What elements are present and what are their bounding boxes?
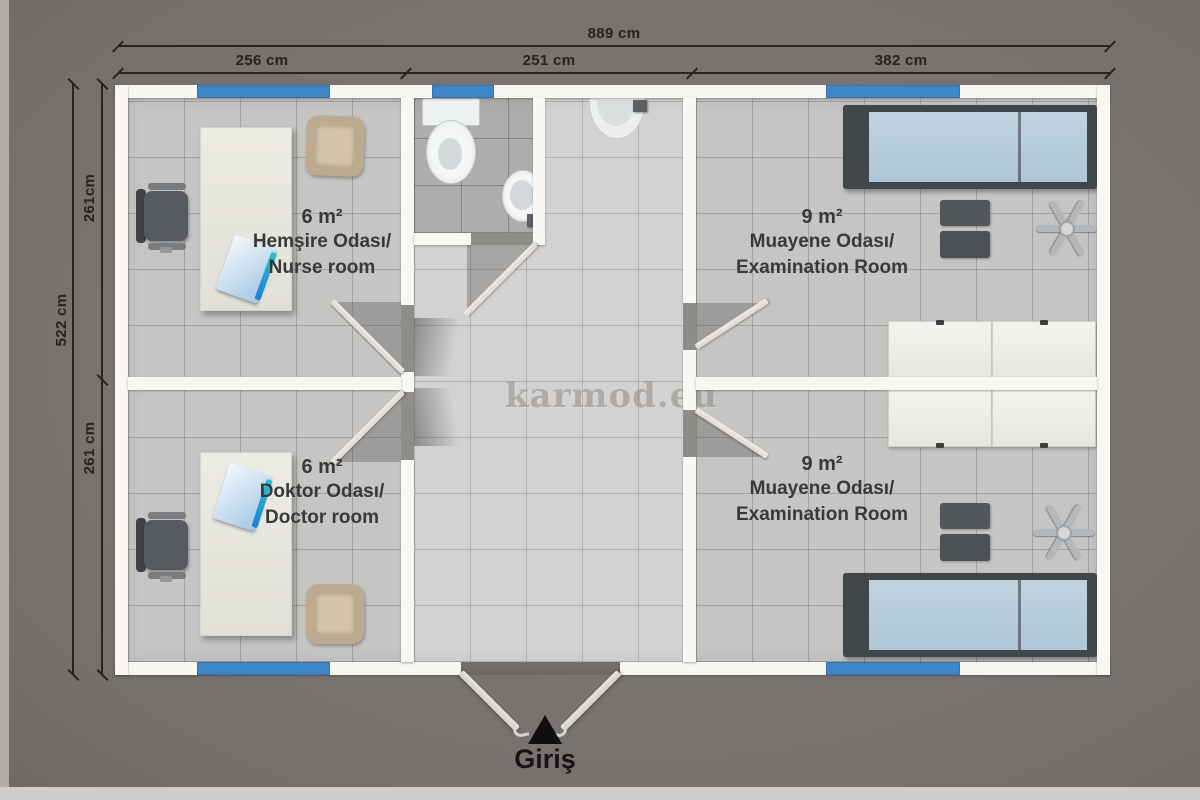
wall-corridor-right-middle [683, 350, 696, 410]
room-label-doctor: 6 m² Doktor Odası/ Doctor room [212, 455, 432, 531]
doctor-guest-chair [306, 584, 364, 644]
wall-divider-left-rooms [128, 377, 401, 390]
floor-plan-scene: 889 cm 256 cm 251 cm 382 cm 522 cm 261cm… [0, 0, 1200, 800]
room-area-exam-bottom: 9 m² [712, 452, 932, 476]
dimension-label-height-segment-2: 261 cm [82, 412, 98, 484]
dimension-label-segment-1: 256 cm [180, 52, 344, 69]
exam-top-bed [843, 105, 1097, 189]
entrance-label: Giriş [495, 744, 595, 775]
dimension-label-segment-2: 251 cm [467, 52, 631, 69]
window-exam-top [826, 85, 960, 98]
exam-bottom-bed [843, 573, 1097, 657]
dimension-line-overall-height [72, 84, 74, 675]
room-area-exam-top: 9 m² [712, 205, 932, 229]
door-opening-exam-bottom [683, 410, 696, 457]
door-opening-wc [471, 233, 533, 245]
window-nurse [197, 85, 330, 98]
watermark-text: karmod.eu [505, 376, 705, 416]
entrance-arrow-icon [528, 715, 562, 744]
wall-corridor-right-lower [683, 457, 696, 662]
room-name-en-nurse: Nurse room [212, 255, 432, 281]
dimension-line-top-segments [118, 72, 1110, 74]
exam-top-chair [940, 200, 990, 258]
nurse-guest-chair [305, 115, 365, 177]
room-label-nurse: 6 m² Hemşire Odası/ Nurse room [212, 205, 432, 281]
wall-right [1097, 85, 1110, 675]
room-name-tr-doctor: Doktor Odası/ [212, 479, 432, 505]
nurse-office-chair [136, 183, 196, 253]
door-opening-nurse [401, 305, 414, 372]
wall-divider-exam-rooms [696, 377, 1097, 390]
door-opening-exam-top [683, 303, 696, 350]
wall-left [115, 85, 128, 675]
dimension-label-segment-3: 382 cm [819, 52, 983, 69]
entrance-door-left [459, 670, 521, 732]
window-doctor [197, 662, 330, 675]
room-area-nurse: 6 m² [212, 205, 432, 229]
doctor-office-chair [136, 512, 196, 582]
door-shadow-corridor-doctor [414, 388, 466, 446]
corridor-soap-dispenser [633, 100, 647, 112]
room-name-en-doctor: Doctor room [212, 505, 432, 531]
door-shadow-corridor-nurse [414, 318, 466, 376]
room-name-en-exam-bottom: Examination Room [712, 502, 932, 528]
room-name-tr-exam-top: Muayene Odası/ [712, 229, 932, 255]
photo-edge-left [0, 0, 9, 800]
exam-bottom-desk-1 [888, 389, 992, 447]
photo-edge-bottom [0, 787, 1200, 800]
wall-corridor-left-middle [401, 372, 414, 392]
dimension-line-left-segments [101, 84, 103, 675]
entrance-door-left-handle [512, 721, 530, 739]
toilet-bowl-inner [438, 138, 462, 170]
wall-corridor-right-upper [683, 97, 696, 303]
room-area-doctor: 6 m² [212, 455, 432, 479]
exam-top-desk-1 [888, 321, 992, 379]
wall-wc-right [533, 97, 545, 245]
dimension-line-overall-width [118, 45, 1110, 47]
room-label-exam-top: 9 m² Muayene Odası/ Examination Room [712, 205, 932, 281]
window-wc [432, 85, 494, 98]
room-name-tr-nurse: Hemşire Odası/ [212, 229, 432, 255]
wc-sink-basin [510, 180, 534, 210]
exam-bottom-swivel-chair [1033, 502, 1095, 564]
door-opening-doctor [401, 392, 414, 460]
entrance-door-right [560, 670, 622, 732]
exam-bottom-chair [940, 503, 990, 561]
exam-top-swivel-chair [1036, 198, 1098, 260]
room-name-tr-exam-bottom: Muayene Odası/ [712, 476, 932, 502]
exam-top-desk-2 [992, 321, 1096, 379]
room-name-en-exam-top: Examination Room [712, 255, 932, 281]
dimension-label-height-segment-1: 261cm [82, 162, 98, 234]
exam-bottom-desk-2 [992, 389, 1096, 447]
dimension-label-overall-height: 522 cm [54, 284, 70, 356]
dimension-label-overall-width: 889 cm [118, 25, 1110, 42]
room-label-exam-bottom: 9 m² Muayene Odası/ Examination Room [712, 452, 932, 528]
window-exam-bottom [826, 662, 960, 675]
